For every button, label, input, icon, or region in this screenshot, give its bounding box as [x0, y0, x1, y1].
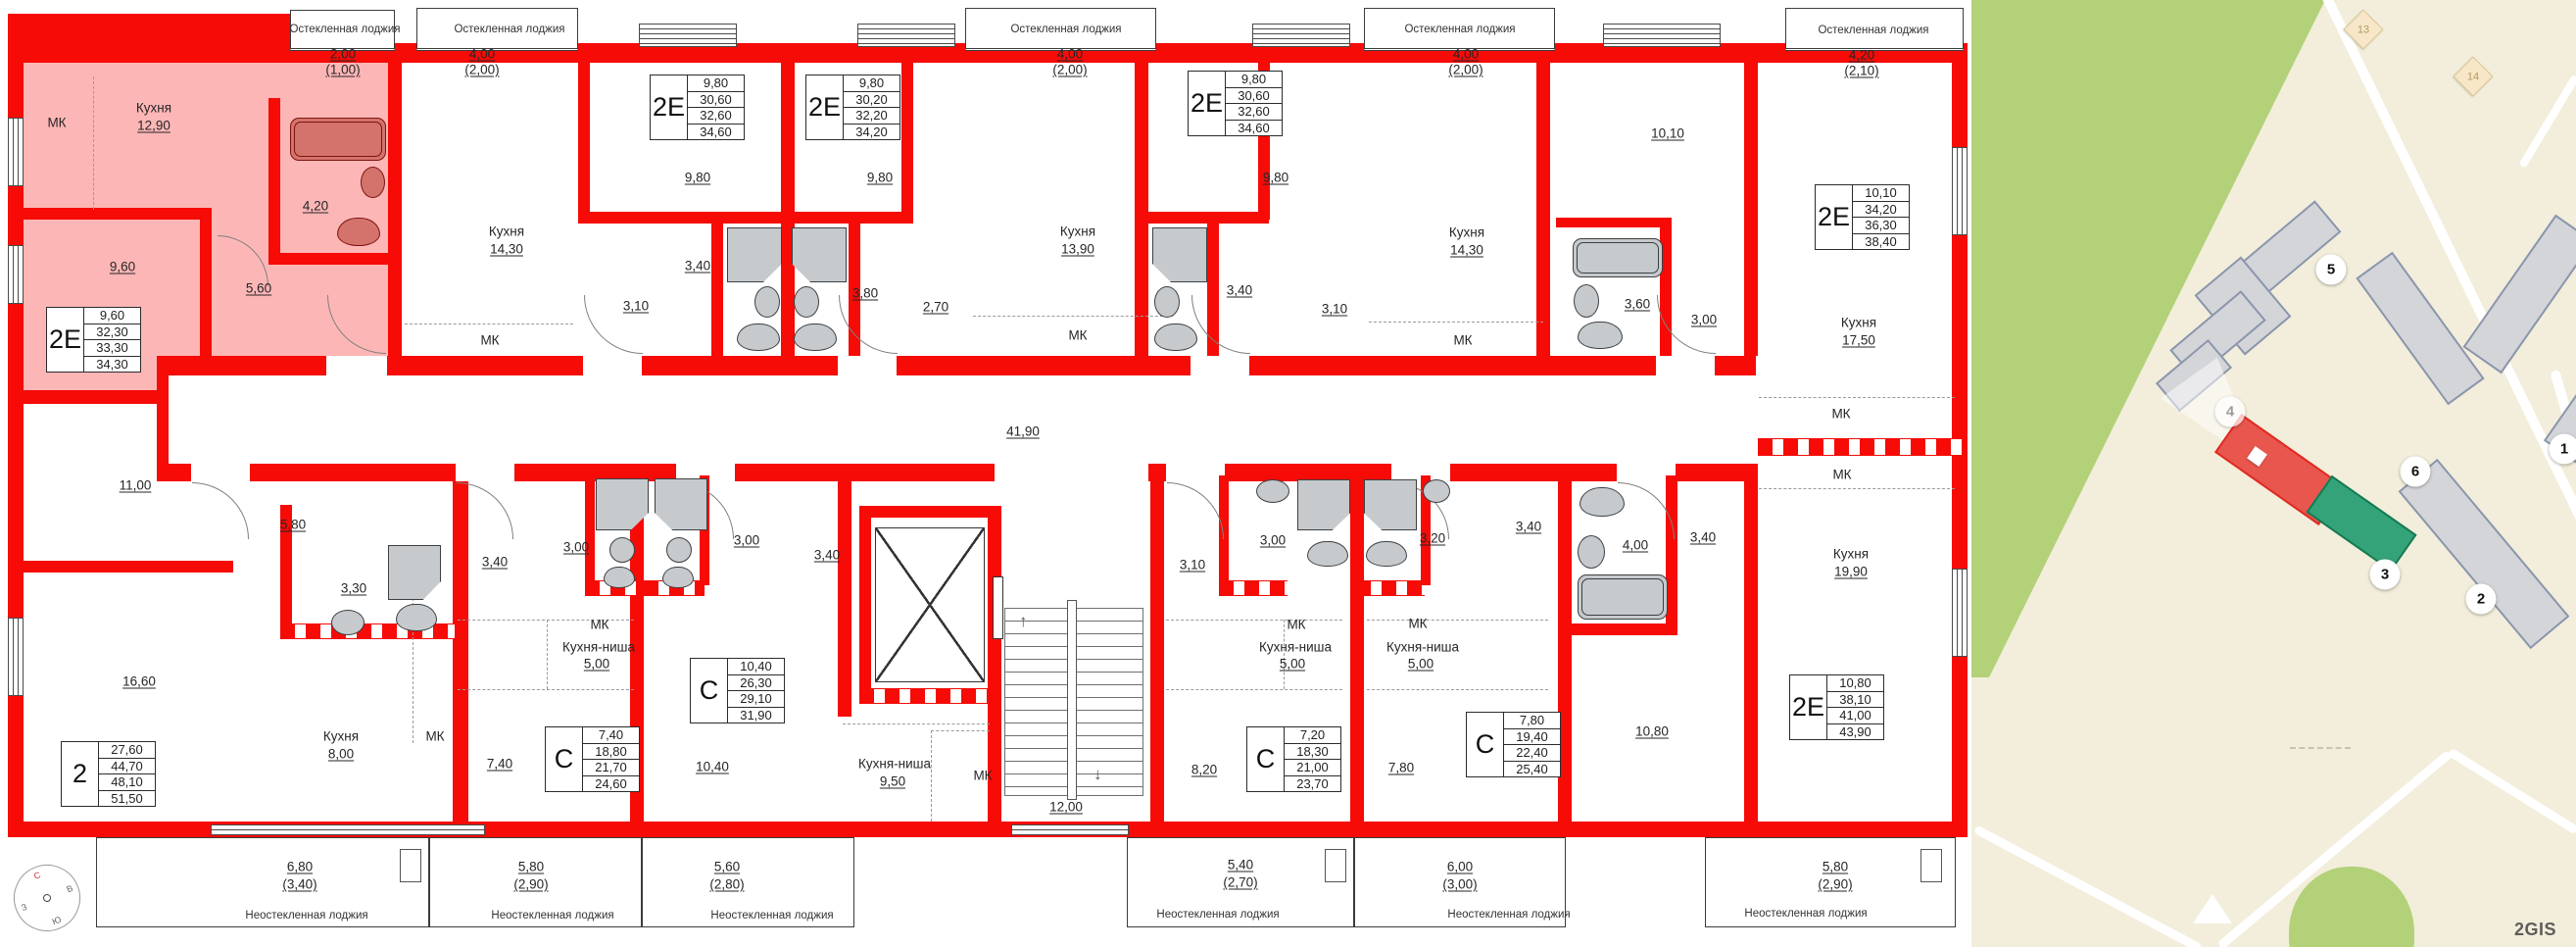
plan-label-b4: Кухня-ниша	[1259, 640, 1332, 655]
apartment-type-box-a2: 2Е9,8030,6032,6034,60	[650, 75, 745, 140]
toilet-icon	[1578, 322, 1623, 349]
elevator-door	[993, 576, 1003, 639]
plan-label-a1: 5,60	[246, 281, 271, 296]
apartment-area-value: 33,30	[84, 339, 140, 356]
plan-label-a3: 3,80	[852, 286, 878, 301]
stairs-down-arrow: ↓	[1094, 765, 1102, 784]
door-arc	[1191, 295, 1250, 354]
plan-label-b4: (2,70)	[1223, 875, 1257, 890]
apartment-area-value: 32,60	[1226, 103, 1282, 120]
map-parcel-number: 13	[2351, 17, 2377, 43]
wall-segment	[1249, 356, 1656, 375]
plan-label-a1: 4,20	[303, 199, 328, 214]
plan-label-a5: 17,50	[1842, 333, 1875, 348]
plan-label-a1: Кухня	[136, 101, 171, 116]
plan-label-a1: 2,00	[330, 47, 356, 62]
wall-segment	[1356, 580, 1425, 596]
plan-label-b2: МК	[590, 618, 608, 632]
plan-label-a5: 10,10	[1651, 126, 1684, 141]
plan-label-a2: 4,00	[469, 47, 495, 62]
apartment-area-value: 31,90	[728, 707, 784, 723]
wall-segment	[200, 208, 212, 357]
apartment-type-letter: 2	[62, 742, 98, 806]
apartment-type-letter: 2Е	[806, 75, 843, 139]
apartment-area-value: 10,10	[1853, 185, 1909, 201]
window	[8, 618, 24, 696]
wall-segment	[165, 356, 326, 375]
plan-label-b5: (3,00)	[1442, 877, 1477, 892]
apartment-area-value: 9,80	[1226, 72, 1282, 87]
plan-label-b3: 9,50	[880, 774, 905, 789]
dashed-boundary	[931, 730, 990, 731]
apartment-area-value: 34,60	[1226, 120, 1282, 136]
plan-label-b2: (2,90)	[513, 877, 548, 892]
plan-label-b4: Неостекленная лоджия	[1156, 909, 1279, 921]
toilet-icon	[1366, 541, 1407, 567]
plan-label-a3: Остекленная лоджия	[1010, 24, 1121, 35]
apartment-area-value: 32,60	[688, 107, 744, 124]
apartment-area-value: 30,60	[688, 91, 744, 108]
sink-icon	[1256, 479, 1289, 503]
plan-label-a1: МК	[47, 116, 66, 130]
dashed-boundary	[843, 723, 990, 724]
wall-segment	[1568, 623, 1677, 635]
wall-segment	[8, 208, 212, 220]
apartment-area-value: 26,30	[728, 674, 784, 691]
sink-icon	[361, 167, 385, 198]
plan-label-b4: МК	[1287, 618, 1305, 632]
apartment-area-value: 43,90	[1827, 723, 1883, 740]
apartment-type-box-a3: 2Е9,8030,2032,2034,20	[805, 75, 900, 140]
plan-label-a5: 3,00	[1691, 313, 1717, 327]
compass-letter-З: З	[20, 902, 28, 913]
plan-label-a2: 3,40	[685, 259, 710, 274]
apartment-area-value: 34,30	[84, 356, 140, 373]
shower-icon	[655, 478, 707, 530]
shower-icon	[388, 545, 441, 600]
plan-label-b5: 5,00	[1408, 657, 1434, 672]
plan-label-a2: 14,30	[490, 242, 523, 257]
wall-segment	[897, 356, 1191, 375]
map-house-badge-3[interactable]: 3	[2370, 560, 2401, 590]
plan-label-b6: 3,40	[1690, 530, 1716, 545]
apartment-type-letter: 2Е	[47, 308, 83, 372]
plan-label-b6: 4,00	[1623, 538, 1648, 553]
plan-label-a5: 3,60	[1625, 297, 1650, 312]
sink-icon	[1154, 286, 1180, 318]
toilet-icon	[737, 324, 780, 351]
apartment-area-value: 7,20	[1285, 727, 1340, 743]
plan-label-a4: (2,00)	[1448, 63, 1482, 77]
apartment-area-value: 19,40	[1504, 728, 1560, 745]
apartment-type-letter: 2Е	[1189, 72, 1225, 135]
apartment-type-box-b4: С7,2018,3021,0023,70	[1246, 726, 1341, 792]
map-watermark: 2GIS	[2514, 920, 2556, 940]
apartment-area-value: 9,80	[688, 75, 744, 91]
wall-segment	[859, 688, 999, 704]
plan-label-a3: (2,00)	[1052, 63, 1087, 77]
dashed-boundary	[547, 620, 548, 689]
plan-label-a5: (2,10)	[1844, 64, 1878, 78]
plan-label-b5: 6,00	[1447, 860, 1473, 874]
wall-segment	[1219, 580, 1288, 596]
window	[1952, 569, 1968, 657]
sink-icon	[794, 286, 819, 318]
plan-label-b1: 6,80	[287, 860, 313, 874]
dashed-boundary	[1759, 488, 1955, 489]
toilet-icon	[396, 604, 437, 631]
dashed-boundary	[1284, 620, 1285, 689]
plan-label-a4: 3,40	[1227, 283, 1252, 298]
plan-label-a4: 14,30	[1450, 243, 1483, 258]
toilet-icon	[662, 567, 694, 588]
wall-segment	[165, 464, 191, 481]
apartment-area-value: 34,60	[688, 124, 744, 140]
plan-label-b2: 5,80	[518, 860, 544, 874]
wall-segment	[711, 224, 723, 356]
dashed-boundary	[1367, 620, 1548, 621]
plan-label-a5: МК	[1831, 407, 1850, 422]
plan-label-b3: Кухня-ниша	[858, 757, 931, 772]
door-arc	[1167, 482, 1224, 539]
map-house-badge-2[interactable]: 2	[2466, 584, 2497, 615]
plan-label-b2: 3,00	[563, 540, 589, 555]
loggia-box	[1325, 849, 1346, 882]
window	[8, 118, 24, 186]
wall-segment	[8, 390, 165, 404]
apartment-area-value: 38,10	[1827, 691, 1883, 708]
dashed-boundary	[1166, 620, 1342, 621]
apartment-area-value: 7,40	[583, 727, 639, 743]
bathtub-icon	[1573, 238, 1663, 277]
plan-label-common: 41,90	[1006, 424, 1040, 439]
plan-label-b6: 10,80	[1635, 724, 1669, 739]
plan-label-b5: Неостекленная лоджия	[1447, 909, 1570, 921]
loggia-box	[400, 849, 421, 882]
bathtub-icon	[1578, 574, 1668, 620]
wall-segment	[585, 475, 595, 585]
elevator-shaft	[875, 527, 985, 682]
sink-icon	[609, 537, 635, 563]
map-house-badge-4[interactable]: 4	[2215, 397, 2246, 427]
apartment-area-value: 44,70	[99, 758, 155, 774]
apartment-area-value: 9,60	[84, 308, 140, 324]
plan-label-b4: 3,10	[1180, 558, 1205, 573]
apartment-area-value: 36,30	[1853, 217, 1909, 233]
apartment-area-value: 23,70	[1285, 775, 1340, 792]
plan-label-b5: 3,40	[1516, 520, 1541, 534]
plan-label-a2: Кухня	[489, 224, 524, 239]
apartment-area-value: 21,70	[583, 759, 639, 775]
plan-label-a3: МК	[1068, 328, 1087, 343]
plan-label-b6: 19,90	[1834, 565, 1868, 579]
window	[1252, 24, 1350, 47]
apartment-area-value: 10,80	[1827, 675, 1883, 691]
wall-segment	[1225, 464, 1391, 481]
wall-segment	[1715, 356, 1756, 375]
wall-segment	[1744, 63, 1758, 356]
map-house-badge-1[interactable]: 1	[2550, 434, 2576, 465]
stairs-up-arrow: ↑	[1019, 612, 1028, 631]
apartment-area-value: 48,10	[99, 773, 155, 790]
apartment-area-value: 24,60	[583, 775, 639, 792]
apartment-area-value: 10,40	[728, 659, 784, 674]
map-house-badge-5[interactable]: 5	[2316, 255, 2347, 285]
plan-label-a5: 4,20	[1849, 48, 1874, 63]
wall-segment	[1350, 481, 1364, 822]
plan-label-a2: 9,80	[685, 171, 710, 185]
apartment-area-value: 18,30	[1285, 743, 1340, 760]
plan-label-b5: МК	[1408, 617, 1427, 631]
sink-icon	[331, 610, 365, 635]
sink-icon	[1574, 284, 1599, 318]
apartment-type-letter: 2Е	[651, 75, 687, 139]
wall-segment	[157, 356, 169, 481]
plan-label-b3: 5,60	[714, 860, 740, 874]
window	[857, 24, 955, 47]
wall-segment	[1744, 464, 1758, 822]
compass-letter-С: С	[32, 870, 42, 881]
plan-label-a4: 4,00	[1453, 47, 1479, 62]
map-road-junction	[2193, 894, 2232, 923]
plan-label-common: 12,00	[1049, 800, 1083, 815]
apartment-area-value: 41,00	[1827, 707, 1883, 723]
toilet-icon	[604, 567, 635, 588]
apartment-area-value: 18,80	[583, 743, 639, 760]
dashed-boundary	[973, 316, 1173, 317]
wall-segment	[1536, 63, 1550, 356]
plan-label-b6: Неостекленная лоджия	[1744, 908, 1867, 920]
plan-label-a4: МК	[1453, 333, 1472, 348]
plan-label-b1: МК	[425, 729, 444, 744]
plan-label-b2: 5,00	[584, 657, 609, 672]
apartment-type-box-b2: С7,4018,8021,7024,60	[545, 726, 640, 792]
plan-label-b4: 5,40	[1228, 858, 1253, 872]
wall-segment	[1556, 218, 1672, 227]
wall-segment	[250, 464, 456, 481]
sink-icon	[754, 286, 780, 318]
plan-label-b1: 8,00	[328, 747, 354, 762]
plan-label-b3: Неостекленная лоджия	[710, 910, 833, 922]
wall-segment	[838, 481, 851, 717]
plan-label-b2: Неостекленная лоджия	[491, 910, 613, 922]
dashed-boundary	[458, 689, 634, 690]
window	[1603, 24, 1721, 47]
plan-label-b5: 3,20	[1420, 531, 1445, 546]
plan-label-a5: Остекленная лоджия	[1818, 25, 1928, 36]
apartment-type-letter: С	[691, 659, 727, 723]
plan-label-b3: 3,40	[814, 548, 840, 563]
window	[1011, 824, 1129, 835]
wall-segment	[1142, 212, 1269, 224]
plan-label-a3: 2,70	[923, 300, 948, 315]
apartment-area-value: 38,40	[1853, 233, 1909, 250]
window	[1952, 147, 1968, 235]
apartment-area-value: 51,50	[99, 790, 155, 807]
plan-label-b6: (2,90)	[1818, 877, 1852, 892]
sink-icon	[666, 537, 692, 563]
apartment-type-box-a1: 2Е9,6032,3033,3034,30	[46, 307, 141, 373]
apartment-type-letter: С	[1467, 713, 1503, 776]
shower-icon	[792, 227, 847, 282]
plan-label-a3: Кухня	[1060, 224, 1095, 239]
wall-segment	[781, 63, 795, 356]
map-path-dashed	[2290, 747, 2351, 749]
wall-segment	[1758, 438, 1966, 456]
plan-label-b1: Кухня	[323, 729, 359, 744]
plan-label-a1: Остекленная лоджия	[289, 24, 400, 35]
wall-segment	[859, 506, 999, 518]
apartment-area-value: 21,00	[1285, 759, 1340, 775]
plan-label-a2: МК	[480, 333, 499, 348]
window	[8, 245, 24, 304]
window	[639, 24, 737, 47]
plan-label-a4: 3,10	[1322, 302, 1347, 317]
wall-segment	[1135, 63, 1148, 356]
plan-label-a3: 13,90	[1061, 242, 1094, 257]
compass-letter-В: В	[66, 883, 74, 895]
wall-segment	[268, 253, 396, 265]
compass-letter-Ю: Ю	[51, 915, 63, 927]
apartment-type-letter: С	[1247, 727, 1284, 791]
plan-label-b2: 3,40	[482, 555, 508, 570]
apartment-area-value: 34,20	[844, 124, 899, 140]
apartment-area-value: 30,20	[844, 91, 899, 108]
wall-segment	[1148, 464, 1166, 481]
compass-center	[42, 893, 52, 903]
dashed-boundary	[931, 730, 932, 822]
toilet-icon	[1307, 541, 1348, 567]
apartment-area-value: 32,20	[844, 107, 899, 124]
shower-icon	[1297, 479, 1350, 530]
apartment-type-letter: С	[546, 727, 582, 791]
wall-segment	[578, 212, 792, 224]
sink-icon	[1423, 479, 1450, 503]
apartment-type-box-a5: 2Е10,1034,2036,3038,40	[1815, 184, 1910, 250]
door-arc	[457, 482, 513, 539]
apartment-type-letter: 2Е	[1816, 185, 1852, 249]
plan-label-b6: 5,80	[1823, 860, 1848, 874]
plan-label-b5: 7,80	[1388, 761, 1414, 775]
plan-label-a2: Остекленная лоджия	[454, 24, 564, 35]
plan-label-a1: 9,60	[110, 260, 135, 274]
plan-label-b1: 16,60	[122, 674, 156, 689]
plan-label-b5: Кухня-ниша	[1386, 640, 1459, 655]
wall-segment	[8, 561, 233, 573]
wall-segment	[514, 464, 676, 481]
dashed-boundary	[1759, 397, 1955, 398]
apartment-area-value: 7,80	[1504, 713, 1560, 728]
apartment-area-value: 32,30	[84, 324, 140, 340]
plan-label-b1: 3,30	[341, 581, 366, 596]
wall-segment	[859, 506, 871, 702]
apartment-area-value: 27,60	[99, 742, 155, 758]
staircase-rail	[1067, 600, 1077, 800]
wall-segment	[1450, 464, 1617, 481]
plan-label-b2: Кухня-ниша	[562, 640, 635, 655]
plan-label-b1: 11,00	[120, 478, 152, 493]
plan-label-b3: (2,80)	[709, 877, 744, 892]
apartment-type-box-b3: С10,4026,3029,1031,90	[690, 658, 785, 723]
wall-segment	[1150, 481, 1164, 822]
plan-label-a1: 12,90	[137, 119, 170, 133]
wall-segment	[387, 356, 583, 375]
toilet-icon	[794, 324, 837, 351]
plan-label-b3: 10,40	[696, 760, 729, 774]
wall-segment	[578, 63, 590, 220]
dashed-boundary	[93, 76, 94, 210]
plan-label-a4: 9,80	[1263, 171, 1288, 185]
apartment-area-value: 30,60	[1226, 87, 1282, 104]
wall-segment	[8, 14, 292, 43]
door-arc	[839, 295, 898, 354]
dashed-boundary	[1166, 689, 1342, 690]
toilet-icon	[337, 218, 380, 246]
screenshot-root: ↑ ↓	[0, 0, 2576, 947]
wall-segment	[388, 63, 402, 356]
wall-segment	[735, 464, 995, 481]
plan-label-a2: (2,00)	[464, 63, 499, 77]
compass-icon: СВЮЗ	[4, 855, 91, 942]
shower-icon	[1152, 227, 1207, 282]
plan-label-b6: МК	[1832, 468, 1851, 482]
plan-label-b1: 5,80	[280, 518, 306, 532]
window	[211, 824, 485, 835]
shower-icon	[727, 227, 782, 282]
plan-label-b1: Неостекленная лоджия	[245, 910, 367, 922]
plan-label-b4: 3,00	[1260, 533, 1286, 548]
plan-label-a4: Кухня	[1449, 225, 1484, 240]
sink-icon	[1578, 535, 1605, 569]
plan-label-b4: 8,20	[1191, 763, 1217, 777]
wall-segment	[642, 356, 838, 375]
plan-label-b6: Кухня	[1833, 547, 1869, 562]
plan-label-a2: 3,10	[623, 299, 649, 314]
apartment-type-letter: 2Е	[1790, 675, 1826, 739]
map-parcel-number: 14	[2460, 64, 2487, 90]
plan-label-a3: 4,00	[1057, 47, 1083, 62]
wall-segment	[1660, 218, 1672, 356]
plan-label-b4: 5,00	[1280, 657, 1305, 672]
wall-segment	[268, 98, 280, 253]
wall-segment	[781, 212, 913, 224]
loggia-box	[1920, 849, 1942, 882]
floor-plan: ↑ ↓	[0, 0, 1971, 947]
plan-label-b1: (3,40)	[282, 877, 316, 892]
toilet-icon	[1580, 487, 1625, 517]
dashed-boundary	[1367, 689, 1548, 690]
apartment-area-value: 34,20	[1853, 201, 1909, 218]
plan-label-a4: Остекленная лоджия	[1404, 24, 1515, 35]
plan-label-a5: Кухня	[1841, 316, 1876, 330]
apartment-area-value: 9,80	[844, 75, 899, 91]
apartment-type-box-b5: С7,8019,4022,4025,40	[1466, 712, 1561, 777]
dashed-boundary	[405, 324, 573, 324]
bathtub-icon	[290, 118, 386, 161]
shower-icon	[1364, 479, 1417, 530]
door-arc	[192, 482, 249, 539]
plan-label-a3: 9,80	[867, 171, 893, 185]
apartment-area-value: 25,40	[1504, 761, 1560, 777]
wall-segment	[901, 63, 913, 220]
plan-label-b2: 7,40	[487, 757, 512, 772]
map-house-badge-6[interactable]: 6	[2401, 457, 2431, 487]
plan-label-a1: (1,00)	[325, 63, 360, 77]
plan-label-b3: МК	[973, 769, 992, 783]
toilet-icon	[1154, 324, 1197, 351]
apartment-type-box-a4: 2Е9,8030,6032,6034,60	[1188, 71, 1283, 136]
apartment-area-value: 29,10	[728, 690, 784, 707]
